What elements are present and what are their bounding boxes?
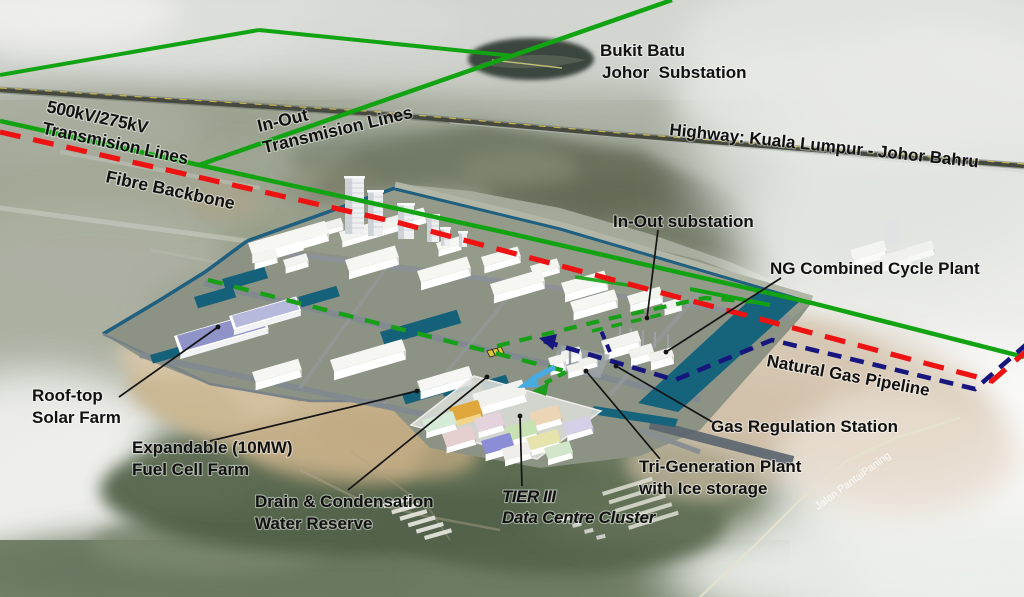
svg-text:Data Centre Cluster: Data Centre Cluster bbox=[502, 508, 657, 527]
svg-text:Fuel Cell Farm: Fuel Cell Farm bbox=[132, 460, 249, 479]
svg-text:Johor Substation: Johor Substation bbox=[602, 63, 747, 82]
svg-text:Drain & Condensation: Drain & Condensation bbox=[255, 492, 434, 511]
svg-text:Bukit Batu: Bukit Batu bbox=[600, 41, 685, 60]
svg-text:Water Reserve: Water Reserve bbox=[255, 514, 373, 533]
svg-text:Gas Regulation Station: Gas Regulation Station bbox=[711, 417, 898, 436]
svg-text:TIER III: TIER III bbox=[502, 487, 557, 506]
svg-text:NG Combined Cycle Plant: NG Combined Cycle Plant bbox=[770, 259, 980, 278]
svg-text:Tri-Generation Plant: Tri-Generation Plant bbox=[639, 457, 802, 476]
svg-text:Solar Farm: Solar Farm bbox=[32, 408, 121, 427]
svg-text:In-Out substation: In-Out substation bbox=[613, 212, 754, 231]
svg-text:Roof-top: Roof-top bbox=[32, 386, 103, 405]
svg-text:Expandable (10MW): Expandable (10MW) bbox=[132, 438, 293, 457]
svg-text:with Ice storage: with Ice storage bbox=[638, 479, 767, 498]
